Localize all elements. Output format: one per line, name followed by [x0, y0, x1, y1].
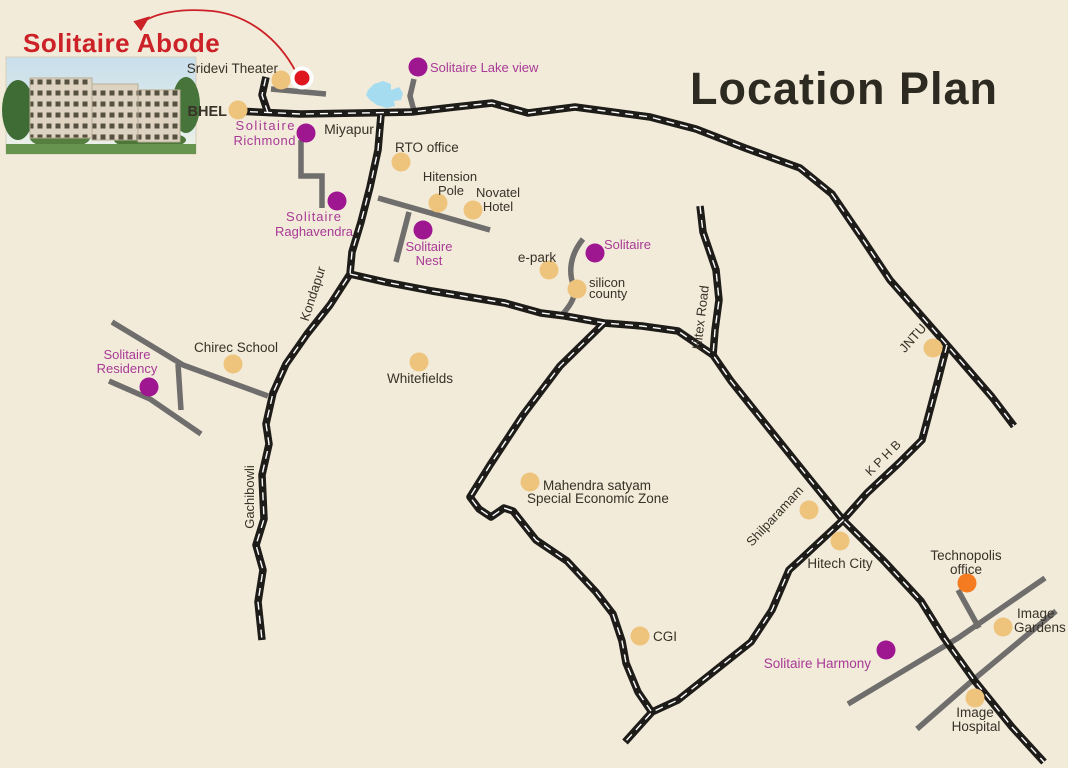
- whitefields-label: Whitefields: [387, 371, 453, 386]
- bhel-dot: [229, 101, 248, 120]
- solitaire-raghavendra-label: Solitaire: [286, 209, 342, 224]
- map-canvas: Solitaire Abode Location Plan Sridevi Th…: [0, 0, 1068, 768]
- solitaire-lake-view-label: Solitaire Lake view: [430, 60, 539, 75]
- jntu-dot: [924, 339, 943, 358]
- mahendra-satyam-sez-label: Special Economic Zone: [527, 491, 669, 506]
- bhel-label: BHEL: [188, 104, 228, 120]
- solitaire-richmond-dot: [297, 124, 316, 143]
- solitaire-nest-label: Solitaire: [406, 239, 453, 254]
- solitaire-nest-dot: [414, 221, 433, 240]
- solitaire-raghavendra-label: Raghavendra: [275, 224, 354, 239]
- solitaire-epark-dot: [586, 244, 605, 263]
- solitaire-richmond-label: Solitaire: [236, 118, 296, 133]
- image-gardens-label: Image: [1017, 606, 1055, 621]
- page-title: Location Plan: [690, 63, 998, 114]
- cgi-label: CGI: [653, 629, 677, 644]
- technopolis-office-label: office: [950, 562, 982, 577]
- solitaire-nest-label: Nest: [416, 253, 443, 268]
- solitaire-harmony-dot: [877, 641, 896, 660]
- silicon-county-dot: [568, 280, 587, 299]
- project-name: Solitaire Abode: [23, 28, 220, 58]
- solitaire-residency-dot: [140, 378, 159, 397]
- novatel-hotel-label: Hotel: [483, 199, 513, 214]
- rto-office-label: RTO office: [395, 140, 459, 155]
- solitaire-lake-view-dot: [409, 58, 428, 77]
- novatel-hotel-label: Novatel: [476, 185, 520, 200]
- cgi-dot: [631, 627, 650, 646]
- rto-office-dot: [392, 153, 411, 172]
- miyapur-label: Miyapur: [324, 121, 374, 137]
- chirec-school-label: Chirec School: [194, 340, 278, 355]
- gachibowli-label: Gachibowli: [242, 465, 257, 529]
- hitension-pole-label: Pole: [438, 183, 464, 198]
- silicon-county-label: county: [589, 286, 628, 301]
- location-plan-map: Solitaire Abode Location Plan Sridevi Th…: [0, 0, 1068, 768]
- image-hospital-label: Image: [956, 705, 994, 720]
- image-gardens-dot: [994, 618, 1013, 637]
- e-park-label: e-park: [518, 250, 557, 265]
- shilparamam-dot: [800, 501, 819, 520]
- mahendra-satyam-sez-dot: [521, 473, 540, 492]
- hitension-pole-label: Hitension: [423, 169, 477, 184]
- image-gardens-label: Gardens: [1014, 620, 1066, 635]
- whitefields-dot: [410, 353, 429, 372]
- technopolis-office-label: Technopolis: [930, 548, 1002, 563]
- chirec-school-dot: [224, 355, 243, 374]
- solitaire-residency-label: Residency: [97, 361, 158, 376]
- novatel-hotel-dot: [464, 201, 483, 220]
- solitaire-raghavendra-dot: [328, 192, 347, 211]
- sridevi-theater-label: Sridevi Theater: [187, 61, 279, 76]
- image-hospital-label: Hospital: [952, 719, 1001, 734]
- solitaire-epark-label: Solitaire: [604, 237, 651, 252]
- solitaire-harmony-label: Solitaire Harmony: [764, 656, 872, 671]
- project-photo: [2, 57, 200, 154]
- solitaire-residency-label: Solitaire: [104, 347, 151, 362]
- hitech-city-dot: [831, 532, 850, 551]
- hitech-city-label: Hitech City: [807, 556, 873, 571]
- solitaire-richmond-label: Richmond: [233, 133, 296, 148]
- chirec-road-connector: [178, 364, 181, 410]
- solitaire-abode-location-dot: [295, 71, 310, 86]
